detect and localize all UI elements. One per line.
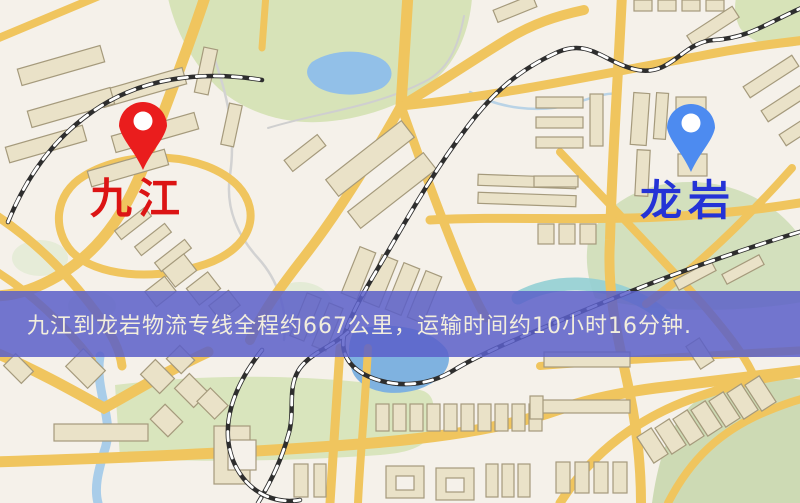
destination-pin-icon[interactable] xyxy=(667,104,715,172)
destination-city-label: 龙岩 xyxy=(608,180,768,222)
map-view[interactable]: 九江 龙岩 九江到龙岩物流专线全程约667公里，运输时间约10小时16分钟. xyxy=(0,0,800,503)
origin-city-label: 九江 xyxy=(58,178,218,220)
route-info-banner: 九江到龙岩物流专线全程约667公里，运输时间约10小时16分钟. xyxy=(0,291,800,357)
route-info-text: 九江到龙岩物流专线全程约667公里，运输时间约10小时16分钟. xyxy=(27,308,692,340)
map-canvas[interactable] xyxy=(0,0,800,503)
